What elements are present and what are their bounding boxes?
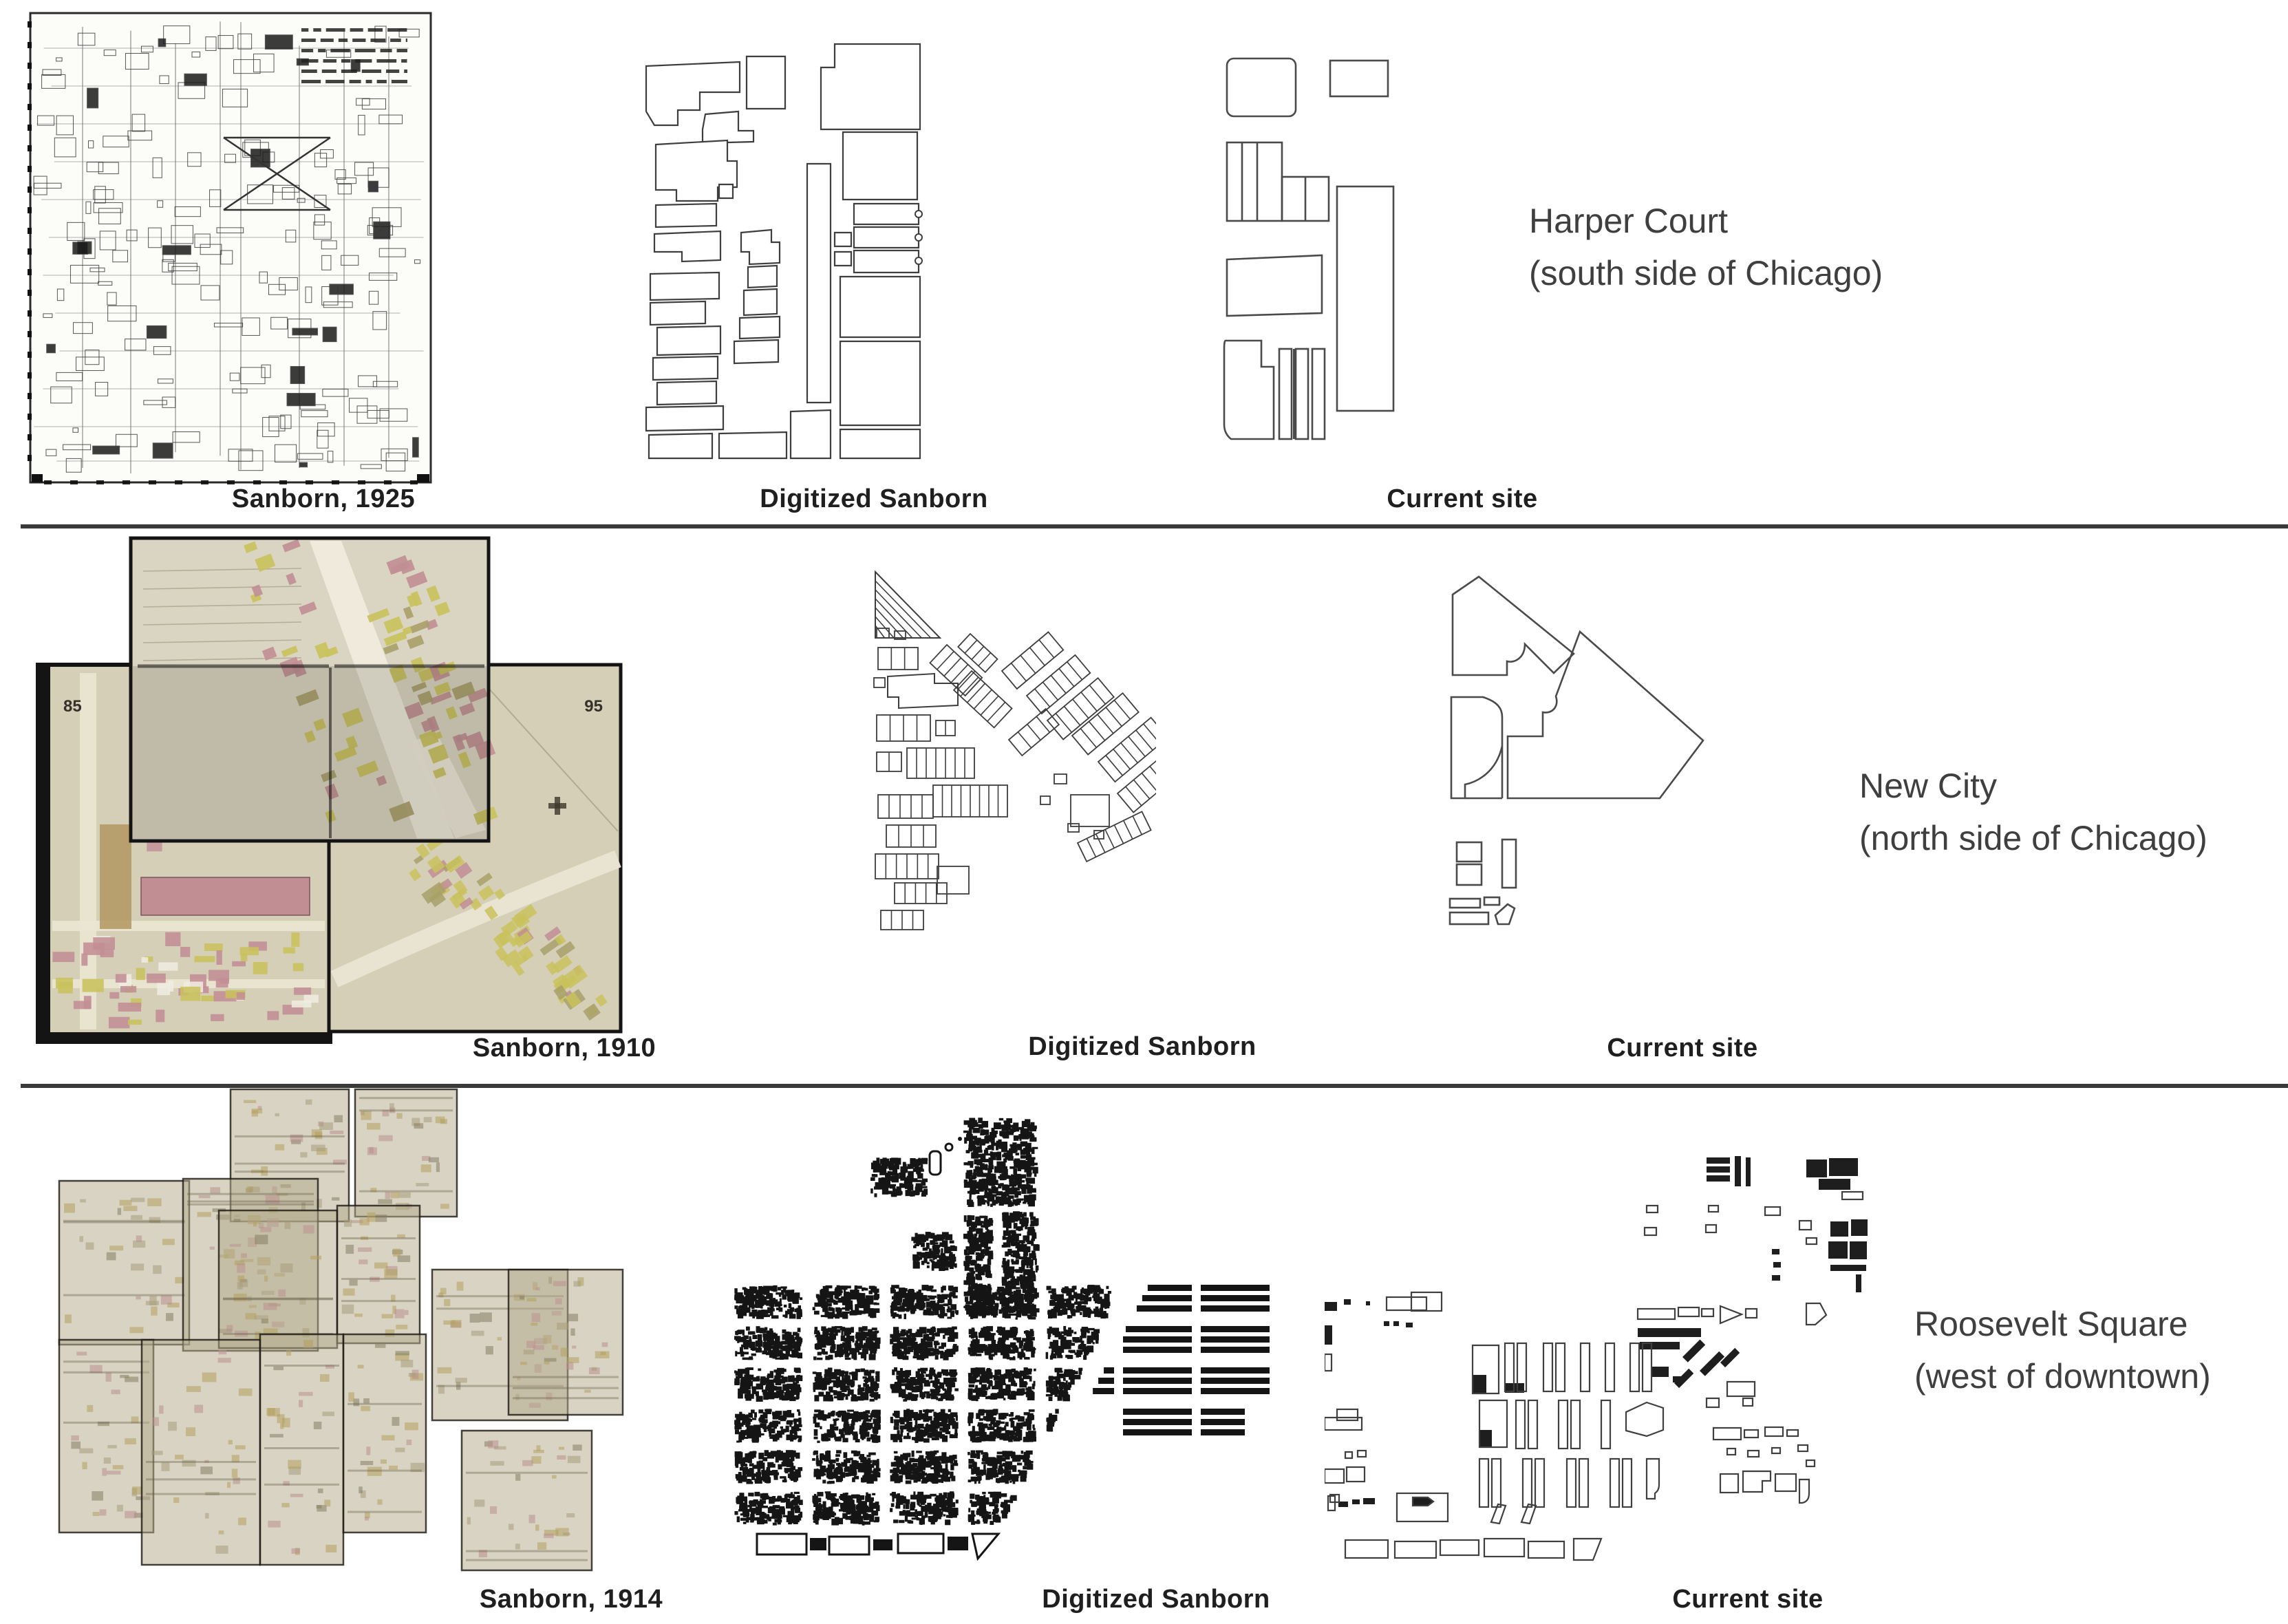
site-label-subtitle: (north side of Chicago)	[1859, 812, 2207, 864]
panel-caption-digitized-r1: Digitized Sanborn	[760, 484, 988, 515]
panel-caption-sanborn-1914: Sanborn, 1914	[480, 1585, 663, 1615]
site-label-title: New City	[1859, 760, 2207, 812]
svg-text:85: 85	[63, 697, 82, 716]
row-divider-1	[21, 524, 2288, 528]
site-label-subtitle: (west of downtown)	[1914, 1350, 2211, 1402]
digitized-sanborn-map-newcity	[867, 568, 1156, 939]
site-label-subtitle: (south side of Chicago)	[1529, 247, 1883, 299]
sanborn-1914-photo-collage	[52, 1087, 630, 1583]
panel-caption-sanborn-1925: Sanborn, 1925	[232, 484, 415, 515]
site-label-title: Harper Court	[1529, 195, 1883, 247]
panel-caption-digitized-r2: Digitized Sanborn	[1028, 1032, 1257, 1062]
current-site-map-harper	[1221, 38, 1435, 451]
figure-canvas: Sanborn, 1925 Digitized Sanborn Current …	[0, 0, 2288, 1624]
site-label-roosevelt-square: Roosevelt Square (west of downtown)	[1914, 1298, 2211, 1402]
panel-caption-digitized-r3: Digitized Sanborn	[1042, 1585, 1270, 1615]
current-site-map-newcity	[1442, 570, 1772, 1051]
sanborn-1925-scan-map	[28, 10, 434, 485]
panel-caption-current-r3: Current site	[1672, 1585, 1823, 1615]
digitized-sanborn-map-roosevelt	[726, 1111, 1287, 1579]
svg-text:95: 95	[584, 697, 603, 716]
row-roosevelt-square: Sanborn, 1914 Digitized Sanborn Current …	[0, 0, 2288, 1624]
site-label-new-city: New City (north side of Chicago)	[1859, 760, 2207, 864]
row-harper-court: Sanborn, 1925 Digitized Sanborn Current …	[0, 0, 2288, 1624]
panel-caption-current-r1: Current site	[1387, 484, 1537, 515]
site-label-title: Roosevelt Square	[1914, 1298, 2211, 1350]
row-divider-2	[21, 1084, 2288, 1088]
row-new-city: 8595 Sanborn, 1910 Digitized Sanborn Cur…	[0, 0, 2288, 1624]
current-site-map-roosevelt	[1325, 1156, 1868, 1579]
site-label-harper-court: Harper Court (south side of Chicago)	[1529, 195, 1883, 299]
panel-caption-current-r2: Current site	[1607, 1034, 1757, 1064]
digitized-sanborn-map-harper	[637, 28, 932, 461]
sanborn-1910-photo-collage: 8595	[34, 535, 626, 1048]
panel-caption-sanborn-1910: Sanborn, 1910	[473, 1034, 656, 1064]
